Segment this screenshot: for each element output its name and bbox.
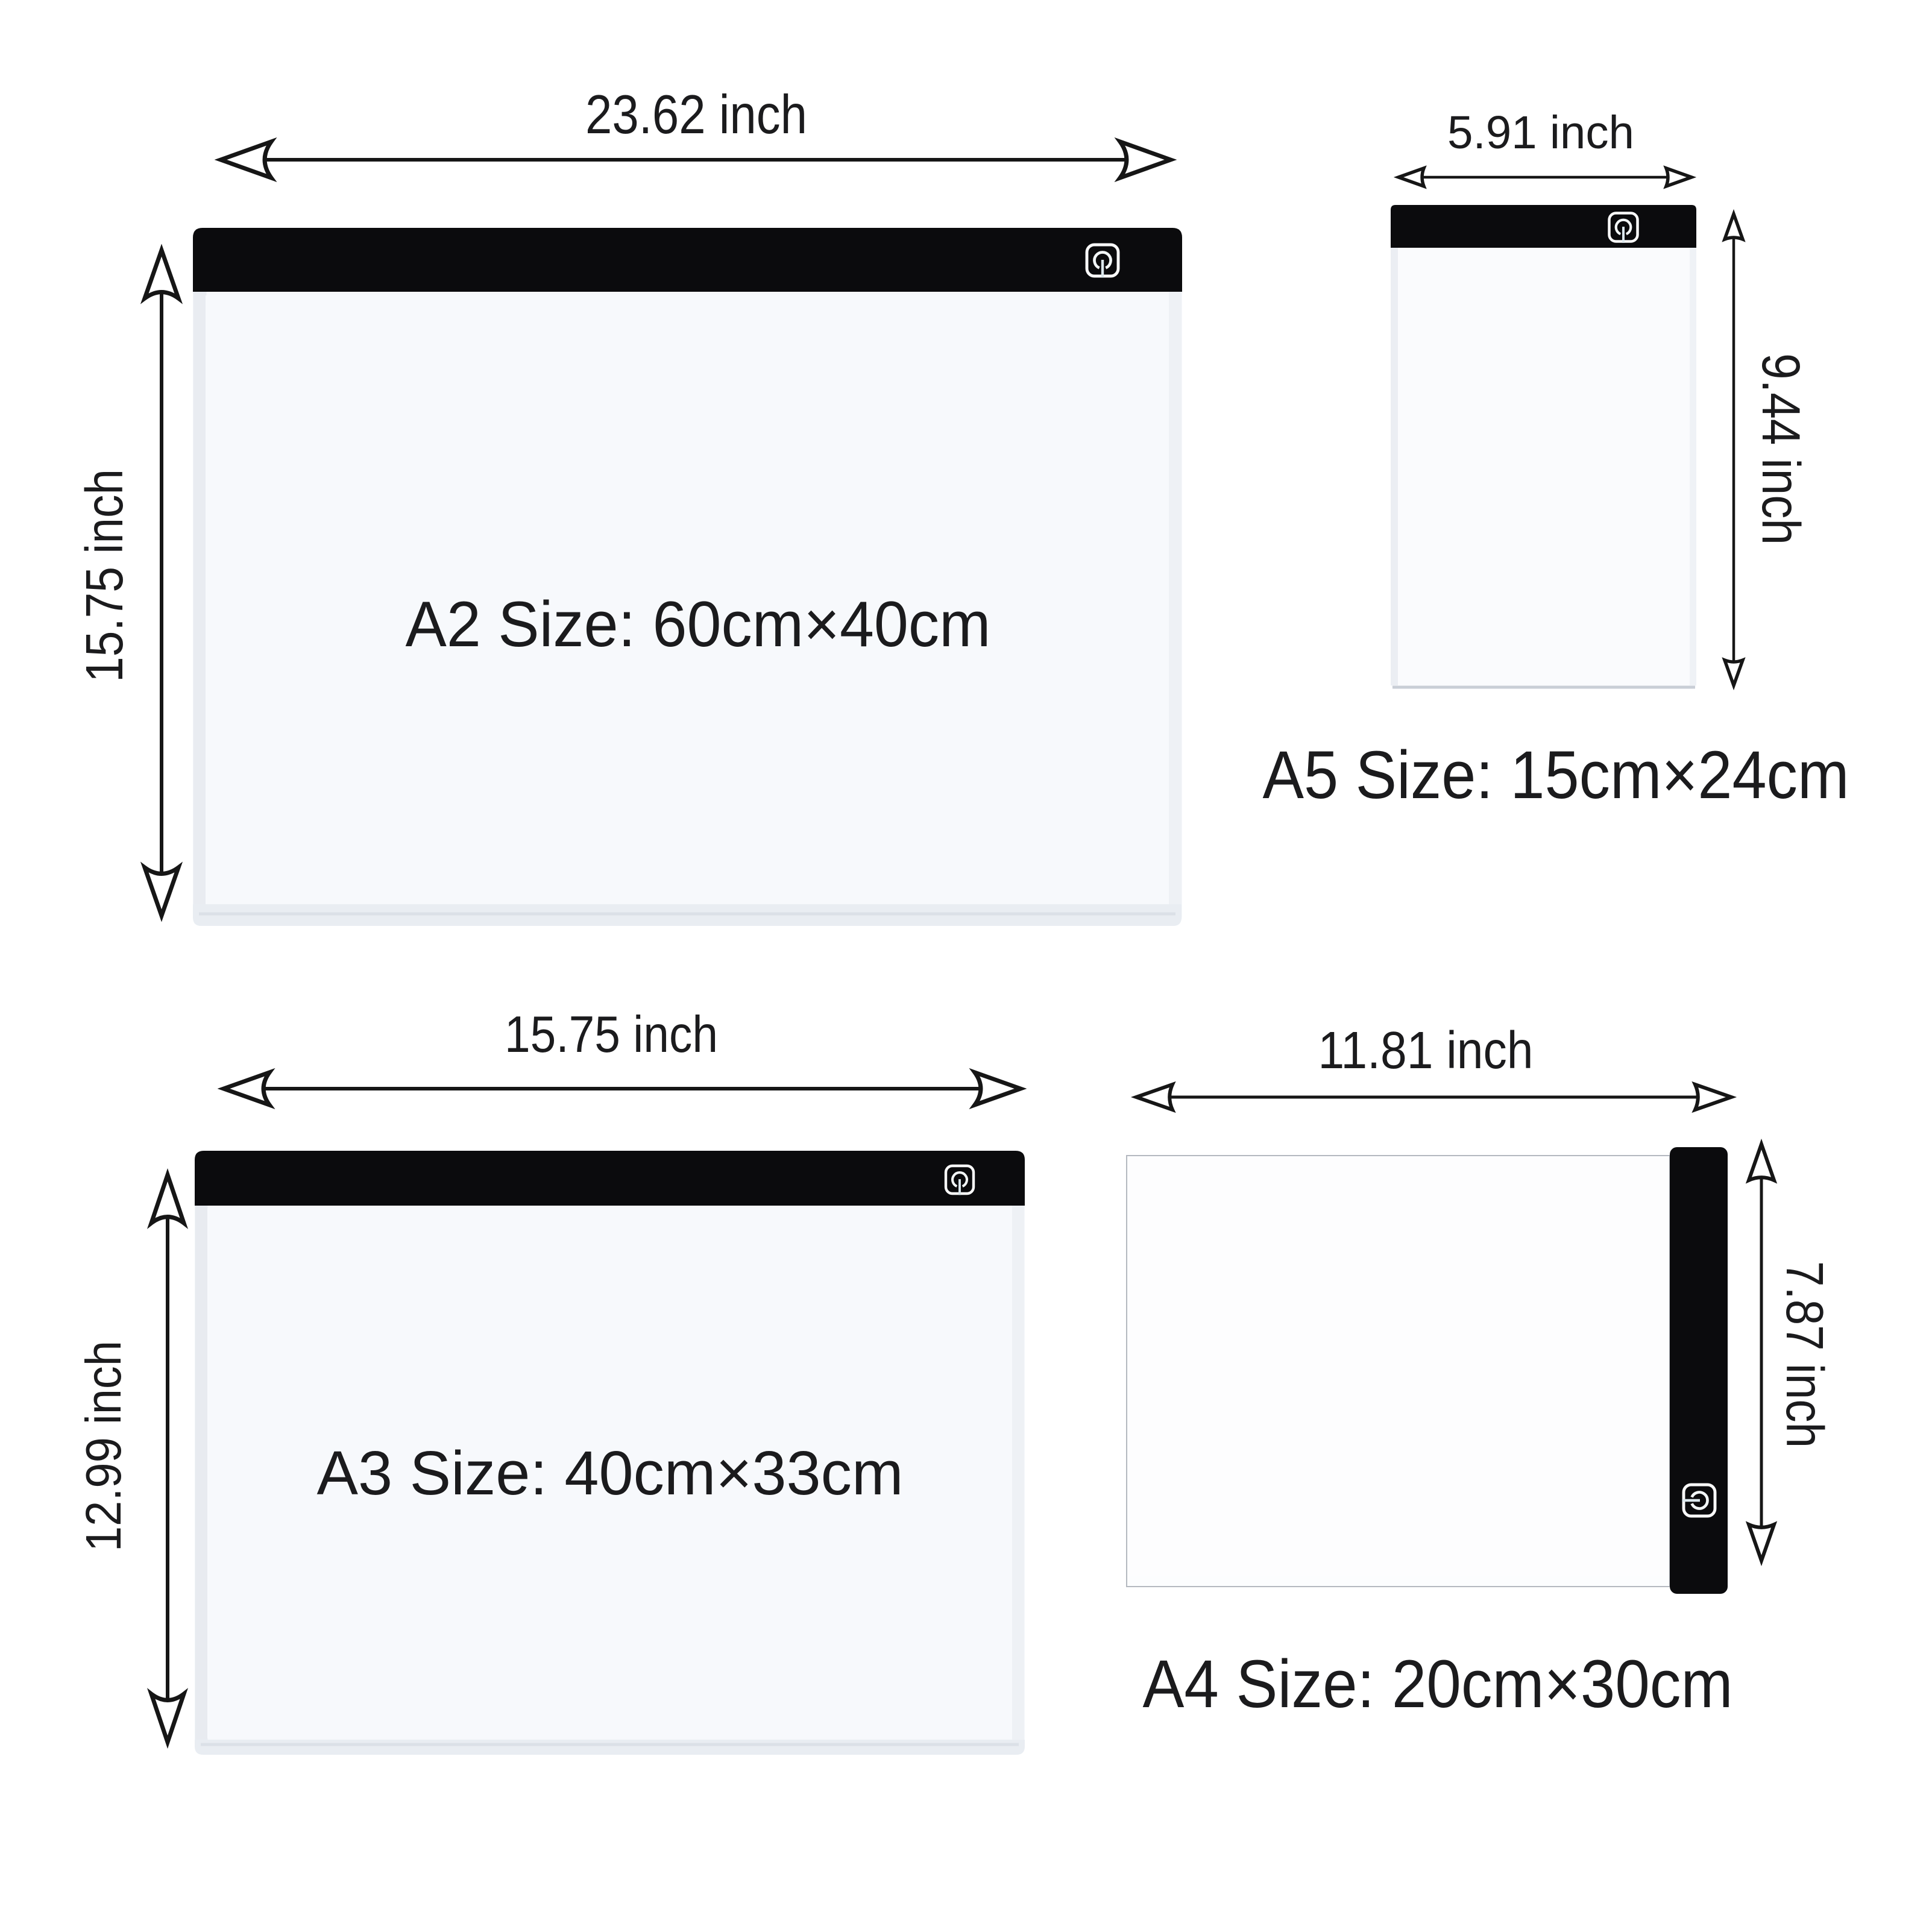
svg-text:5.91 inch: 5.91 inch (1447, 107, 1634, 159)
svg-text:A3 Size: 40cm×33cm: A3 Size: 40cm×33cm (317, 1438, 904, 1508)
svg-text:11.81 inch: 11.81 inch (1318, 1021, 1534, 1080)
svg-text:A5 Size: 15cm×24cm: A5 Size: 15cm×24cm (1263, 737, 1849, 813)
svg-text:9.44 inch: 9.44 inch (1751, 353, 1811, 545)
svg-text:7.87 inch: 7.87 inch (1775, 1261, 1834, 1448)
svg-text:12.99 inch: 12.99 inch (75, 1341, 131, 1552)
svg-text:A4 Size: 20cm×30cm: A4 Size: 20cm×30cm (1143, 1646, 1733, 1722)
svg-text:23.62 inch: 23.62 inch (585, 84, 807, 145)
svg-text:A2 Size: 60cm×40cm: A2 Size: 60cm×40cm (406, 588, 991, 660)
svg-text:15.75 inch: 15.75 inch (75, 469, 134, 682)
svg-text:15.75 inch: 15.75 inch (505, 1006, 718, 1063)
